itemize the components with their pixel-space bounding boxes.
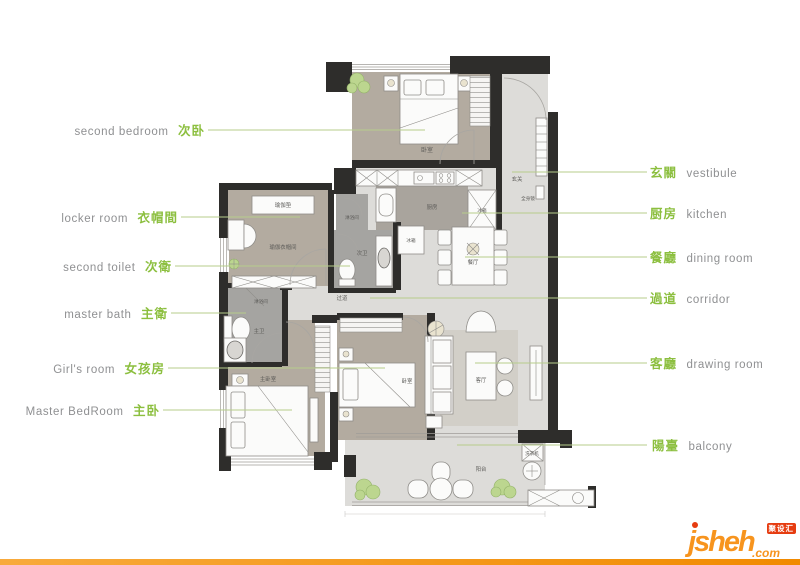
full-length-mirror [536,186,544,199]
annotation-master-bath: master bath 主衛 [64,305,168,322]
annotation-zh: 厨房 [650,207,677,221]
annotation-zh: 客廳 [650,357,677,371]
plan-label-yoga-locker: 瑜伽衣帽间 [270,243,297,251]
annotation-en: second toilet [63,262,135,274]
annotation-en: dining room [686,253,753,265]
sink-basin [227,341,243,359]
annotation-vestibule: 玄關 vestibule [650,164,737,181]
plan-label-corridor: 过道 [337,294,348,302]
side-table [426,416,442,428]
chair [453,480,473,498]
annotation-kitchen: 厨房 kitchen [650,205,727,222]
annotation-zh: 主衛 [141,307,168,321]
floorplan-page: 卧室 玄关 全身镜 厨房 冰箱 冰箱 淋浴间 次卫 餐厅 过道 淋浴间 主卫 主… [0,0,800,565]
wardrobe [315,326,330,392]
annotation-master-bedroom: Master BedRoom 主卧 [26,402,160,419]
jsheh-logo: jsheh .com 聚设汇 [688,522,794,556]
logo-wordmark: jsheh [688,526,754,559]
plan-label-girls-bedroom: 卧室 [402,377,413,385]
annotation-zh: 過道 [650,292,677,306]
chair [408,480,428,498]
shoe-cabinet [536,118,547,176]
annotation-second-toilet: second toilet 次衛 [63,258,172,275]
plan-label-vestibule: 玄关 [512,175,523,183]
plan-label-shower-second: 淋浴间 [345,214,359,221]
annotation-en: kitchen [686,209,727,221]
logo-j-dot [692,522,698,528]
annotation-second-bedroom: second bedroom 次卧 [74,122,205,139]
annotation-en: balcony [688,441,732,453]
annotation-en: master bath [64,309,131,321]
annotation-zh: 餐廳 [650,251,677,265]
laundry-counter [528,490,594,506]
sink-basin [378,248,390,268]
annotation-locker-room: locker room 衣帽間 [61,209,178,226]
coffee-table [466,352,496,400]
annotation-en: Master BedRoom [26,406,124,418]
plan-label-shower-master: 淋浴间 [254,298,268,305]
closet [340,318,402,332]
annotation-zh: 衣帽間 [137,211,178,225]
annotation-zh: 女孩房 [124,362,165,376]
annotation-en: corridor [686,294,730,306]
bottom-orange-bar [0,559,800,565]
plan-label-master-bedroom: 主卧室 [260,375,277,383]
annotation-en: Girl's room [53,364,115,376]
logo-tld: .com [752,546,780,560]
plan-label-mirror: 全身镜 [521,195,535,202]
annotation-zh: 主卧 [133,404,160,418]
bench [310,398,318,442]
plan-label-bedroom2: 卧室 [421,146,433,154]
plan-label-second-toilet: 次卫 [357,249,368,257]
plan-label-fridge-lower: 冰箱 [406,237,416,244]
annotation-zh: 次衛 [145,260,172,274]
plan-label-balcony: 阳台 [476,465,487,473]
dining-table [452,227,494,285]
annotation-en: vestibule [686,168,737,180]
annotation-corridor: 過道 corridor [650,290,730,307]
logo-badge: 聚设汇 [767,523,797,534]
annotation-en: drawing room [686,359,763,371]
plan-label-dining: 餐厅 [468,258,479,266]
annotation-zh: 陽臺 [652,439,679,453]
round-table [430,478,452,500]
low-cabinet [232,276,316,288]
plan-label-yoga-mat: 瑜伽垫 [275,201,292,209]
plan-label-washer: 洗衣机 [525,450,539,457]
wardrobe [470,76,490,126]
plan-label-living: 客厅 [476,376,487,384]
annotation-balcony: 陽臺 balcony [652,437,732,454]
annotation-en: second bedroom [74,126,168,138]
annotation-zh: 玄關 [650,166,677,180]
annotation-dining-room: 餐廳 dining room [650,249,753,266]
kitchen-sink [414,172,434,184]
round-stool [497,358,513,374]
dining-furniture [438,227,507,285]
floorplan-drawing: 卧室 玄关 全身镜 厨房 冰箱 冰箱 淋浴间 次卫 餐厅 过道 淋浴间 主卫 主… [0,0,800,565]
toilet [232,317,250,341]
plan-label-kitchen: 厨房 [427,203,438,211]
toilet [339,259,355,281]
plan-label-master-bath: 主卫 [254,327,265,335]
annotation-en: locker room [61,213,128,225]
annotation-zh: 次卧 [178,124,205,138]
annotation-girls-room: Girl's room 女孩房 [53,360,165,377]
stove [436,172,454,184]
flower-icon [229,259,239,269]
annotation-drawing-room: 客廳 drawing room [650,355,763,372]
round-stool [497,380,513,396]
